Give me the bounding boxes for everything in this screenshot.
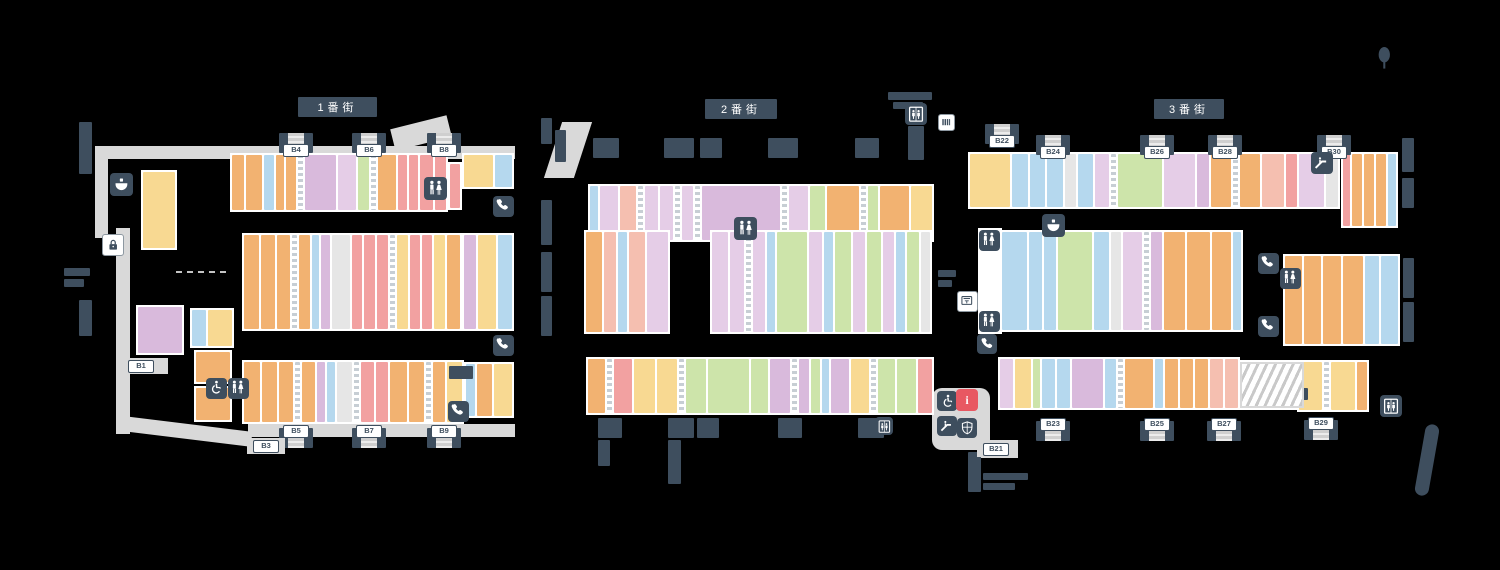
store-unit	[1151, 232, 1162, 330]
store-unit	[712, 232, 728, 332]
store-unit	[1331, 362, 1354, 410]
store-unit	[1042, 359, 1055, 408]
store-unit	[276, 155, 284, 210]
phone-icon	[1258, 316, 1279, 337]
entrance-mark	[697, 418, 719, 438]
store-unit	[614, 359, 631, 413]
store-unit	[1357, 362, 1367, 410]
store-unit	[477, 364, 492, 416]
store-unit	[682, 186, 692, 240]
store-unit	[918, 359, 932, 413]
store-unit	[824, 232, 833, 332]
store-unit	[767, 232, 776, 332]
store-row	[584, 230, 670, 334]
store-unit	[338, 155, 356, 210]
store-unit	[312, 235, 319, 329]
restroom-icon	[1280, 268, 1301, 289]
store-unit	[232, 155, 244, 210]
entrance-mark	[768, 138, 798, 158]
escalator-icon	[1311, 152, 1333, 174]
escalator-icon	[937, 416, 957, 436]
entrance-mark	[938, 280, 952, 287]
store-row	[462, 153, 514, 189]
entrance-mark	[983, 483, 1015, 490]
store-unit	[1323, 256, 1340, 344]
store-unit	[409, 155, 418, 210]
restroom-icon	[734, 217, 757, 240]
restroom-icon	[424, 177, 447, 200]
store-unit	[208, 310, 232, 346]
store-unit	[1111, 232, 1122, 330]
store-unit	[447, 235, 460, 329]
store-unit	[1304, 256, 1321, 344]
store-unit	[809, 232, 822, 332]
store-separator	[354, 362, 359, 422]
store-unit	[1240, 154, 1260, 207]
store-row	[190, 308, 234, 348]
store-unit	[1165, 359, 1178, 408]
phone-icon	[448, 401, 469, 422]
store-unit	[853, 232, 866, 332]
store-unit	[1058, 232, 1092, 330]
phone-icon	[977, 334, 997, 354]
store-unit	[1123, 232, 1142, 330]
store-unit	[1364, 154, 1374, 226]
store-unit	[1212, 232, 1231, 330]
exit-label: B26	[1144, 146, 1170, 159]
store-row	[230, 153, 448, 212]
store-unit	[138, 307, 182, 353]
entrance-mark	[1402, 138, 1414, 172]
store-unit	[317, 362, 325, 422]
store-unit	[1033, 359, 1041, 408]
store-unit	[770, 359, 790, 413]
store-unit	[299, 235, 311, 329]
street-title-1: 1番街	[298, 97, 377, 117]
exit-label: B3	[253, 440, 279, 453]
store-unit	[851, 359, 868, 413]
entrance-mark	[598, 440, 610, 466]
store-unit	[753, 232, 765, 332]
street-title-3: 3番街	[1154, 99, 1224, 119]
store-unit	[264, 155, 274, 210]
store-unit	[246, 155, 262, 210]
stairsmini-icon	[938, 114, 955, 131]
store-separator	[695, 186, 700, 240]
elevator-icon	[1380, 395, 1402, 417]
store-unit	[361, 362, 374, 422]
entrance-mark	[541, 296, 552, 336]
store-unit	[1211, 154, 1231, 207]
store-unit	[1118, 154, 1161, 207]
entrance-mark	[668, 418, 694, 438]
restroom-icon	[228, 378, 249, 399]
entrance-mark	[664, 138, 694, 158]
store-unit	[1015, 359, 1031, 408]
store-unit	[305, 155, 336, 210]
store-unit	[1262, 154, 1284, 207]
entrance-mark	[555, 130, 566, 162]
entrance-mark	[983, 473, 1028, 480]
store-unit	[1125, 359, 1154, 408]
store-unit	[261, 235, 276, 329]
store-unit	[398, 155, 407, 210]
store-row	[586, 357, 934, 415]
store-row	[136, 305, 184, 355]
store-unit	[409, 362, 424, 422]
entrance-mark	[541, 252, 552, 292]
store-unit	[1376, 154, 1386, 226]
entrance-mark	[1402, 178, 1414, 208]
walkway	[116, 228, 130, 434]
restroom-icon	[979, 311, 1000, 332]
store-separator	[371, 155, 376, 210]
store-unit	[1164, 154, 1195, 207]
phone-icon	[493, 335, 514, 356]
store-row	[1283, 254, 1400, 346]
store-separator	[298, 155, 303, 210]
store-unit	[1225, 359, 1238, 408]
store-row	[1000, 230, 1243, 332]
store-unit	[1365, 256, 1379, 344]
store-unit	[358, 155, 369, 210]
entrance-mark	[541, 118, 552, 144]
store-unit	[378, 155, 396, 210]
entrance-mark	[1414, 423, 1440, 496]
store-separator	[426, 362, 431, 422]
store-row	[1341, 152, 1398, 228]
store-unit	[377, 235, 388, 329]
store-unit	[1164, 232, 1185, 330]
store-row	[998, 357, 1240, 410]
store-unit	[1044, 232, 1057, 330]
exit-label: B9	[431, 425, 457, 438]
store-unit	[1057, 359, 1070, 408]
store-separator	[292, 235, 297, 329]
store-unit	[321, 235, 330, 329]
entrance-mark	[593, 138, 619, 158]
exit-label: B21	[983, 443, 1009, 456]
store-unit	[1094, 232, 1109, 330]
store-row	[448, 162, 462, 210]
store-unit	[883, 232, 894, 332]
exit-label: B5	[283, 425, 309, 438]
store-unit	[1030, 154, 1046, 207]
exit-label: B27	[1211, 418, 1237, 431]
store-unit	[327, 362, 335, 422]
exit-label: B28	[1212, 146, 1238, 159]
elevator-icon	[875, 417, 893, 435]
store-unit	[604, 232, 616, 332]
store-separator	[1324, 362, 1329, 410]
store-separator	[792, 359, 797, 413]
fountain-icon	[110, 173, 133, 196]
store-unit	[192, 310, 206, 346]
exit-label: B6	[356, 144, 382, 157]
store-unit	[262, 362, 278, 422]
store-separator	[871, 359, 876, 413]
store-unit	[494, 364, 512, 416]
store-unit	[397, 235, 409, 329]
store-unit	[831, 359, 850, 413]
shield-icon	[957, 418, 977, 438]
store-unit	[686, 359, 706, 413]
store-unit	[1210, 359, 1223, 408]
entrance-mark	[968, 452, 981, 492]
locker-icon	[102, 234, 124, 256]
store-unit	[586, 232, 602, 332]
restroom-icon	[979, 230, 1000, 251]
store-row	[242, 233, 462, 331]
entrance-mark	[1403, 258, 1414, 298]
elevator-icon	[905, 103, 927, 125]
store-unit	[376, 362, 389, 422]
store-row	[141, 170, 177, 250]
fountain-icon	[1042, 214, 1065, 237]
exit-label: B23	[1040, 418, 1066, 431]
street-title-2: 2番街	[705, 99, 777, 119]
exit-label: B22	[989, 135, 1015, 148]
store-unit	[286, 155, 296, 210]
store-unit	[1233, 232, 1241, 330]
store-separator	[1144, 232, 1149, 330]
store-unit	[751, 359, 768, 413]
entrance-mark	[449, 366, 473, 379]
store-unit	[478, 235, 497, 329]
store-unit	[450, 164, 460, 208]
exit-label: B1	[128, 360, 154, 373]
store-row	[462, 233, 514, 331]
store-unit	[464, 235, 476, 329]
store-unit	[730, 232, 744, 332]
store-separator	[746, 232, 751, 332]
entrance-mark	[541, 200, 552, 245]
store-row	[1297, 360, 1369, 412]
entrance-mark	[938, 270, 956, 277]
store-separator	[1233, 154, 1238, 207]
store-unit	[390, 362, 407, 422]
store-separator	[607, 359, 612, 413]
store-unit	[1095, 154, 1109, 207]
store-unit	[1078, 154, 1094, 207]
store-row	[710, 230, 932, 334]
store-separator	[295, 362, 300, 422]
exit-label: B4	[283, 144, 309, 157]
store-unit	[1029, 232, 1042, 330]
store-row	[968, 152, 1340, 209]
entrance-mark	[855, 138, 879, 158]
exit-label: B7	[356, 425, 382, 438]
store-unit	[422, 235, 432, 329]
store-unit	[907, 232, 920, 332]
store-separator	[1111, 154, 1116, 207]
entrance-mark	[1403, 302, 1414, 342]
walkway	[124, 416, 253, 446]
store-unit	[1180, 359, 1193, 408]
store-unit	[822, 359, 829, 413]
phone-icon	[1258, 253, 1279, 274]
exit-label: B25	[1144, 418, 1170, 431]
entrance-mark	[668, 440, 681, 484]
store-unit	[799, 359, 809, 413]
store-unit	[1065, 154, 1076, 207]
entrance-mark	[79, 122, 92, 174]
store-unit	[1197, 154, 1209, 207]
entrance-mark	[778, 418, 802, 438]
store-unit	[1195, 359, 1208, 408]
store-unit	[970, 154, 1010, 207]
svg-text:i: i	[965, 395, 968, 407]
store-unit	[708, 359, 748, 413]
store-separator	[1118, 359, 1123, 408]
store-unit	[657, 359, 677, 413]
store-unit	[1000, 359, 1013, 408]
store-separator	[390, 235, 395, 329]
floor-map: 1番街 2番街 3番街 B4B6B8B5B7B9B3B1B22B24B26B28…	[0, 0, 1500, 570]
store-unit	[410, 235, 420, 329]
store-unit	[495, 155, 512, 187]
exit-label: B24	[1040, 146, 1066, 159]
store-unit	[1047, 154, 1063, 207]
store-unit	[1343, 154, 1350, 226]
store-unit	[777, 232, 807, 332]
wheelchair-icon	[937, 391, 957, 411]
store-unit	[352, 235, 363, 329]
walkway	[95, 146, 108, 238]
entrance-mark	[908, 126, 924, 160]
wheelchair-icon	[206, 378, 227, 399]
store-unit	[337, 362, 352, 422]
atm-icon	[957, 291, 978, 312]
store-separator	[679, 359, 684, 413]
store-unit	[498, 235, 512, 329]
walkway	[176, 271, 226, 273]
store-unit	[464, 155, 493, 187]
entrance-mark	[598, 418, 622, 438]
store-unit	[332, 235, 350, 329]
store-unit	[277, 235, 290, 329]
tree-icon	[1369, 42, 1399, 72]
store-unit	[302, 362, 315, 422]
entrance-mark	[64, 268, 90, 276]
store-unit	[143, 172, 175, 248]
store-unit	[647, 232, 668, 332]
store-unit	[1286, 154, 1297, 207]
store-unit	[811, 359, 820, 413]
store-unit	[364, 235, 375, 329]
entrance-mark	[64, 279, 84, 287]
store-unit	[1105, 359, 1115, 408]
stairs-graphic	[1240, 362, 1304, 408]
store-unit	[618, 232, 627, 332]
store-unit	[896, 232, 905, 332]
store-unit	[1343, 256, 1363, 344]
store-unit	[1381, 256, 1398, 344]
store-unit	[588, 359, 605, 413]
store-unit	[244, 235, 259, 329]
store-unit	[1155, 359, 1163, 408]
exit-label: B29	[1308, 417, 1334, 430]
info-icon: i	[956, 389, 978, 411]
store-unit	[835, 232, 851, 332]
store-unit	[1012, 154, 1028, 207]
exit-label: B8	[431, 144, 457, 157]
store-unit	[629, 232, 645, 332]
store-unit	[1388, 154, 1396, 226]
store-unit	[1072, 359, 1103, 408]
store-unit	[1002, 232, 1027, 330]
entrance-mark	[700, 138, 722, 158]
store-unit	[921, 232, 930, 332]
store-unit	[434, 235, 446, 329]
phone-icon	[493, 196, 514, 217]
store-unit	[279, 362, 293, 422]
store-unit	[878, 359, 895, 413]
entrance-mark	[79, 300, 92, 336]
store-unit	[897, 359, 916, 413]
store-unit	[867, 232, 881, 332]
store-unit	[1352, 154, 1362, 226]
store-unit	[634, 359, 656, 413]
entrance-mark	[888, 92, 932, 100]
store-unit	[1187, 232, 1210, 330]
store-unit	[433, 362, 446, 422]
store-row	[242, 360, 464, 424]
store-separator	[675, 186, 680, 240]
